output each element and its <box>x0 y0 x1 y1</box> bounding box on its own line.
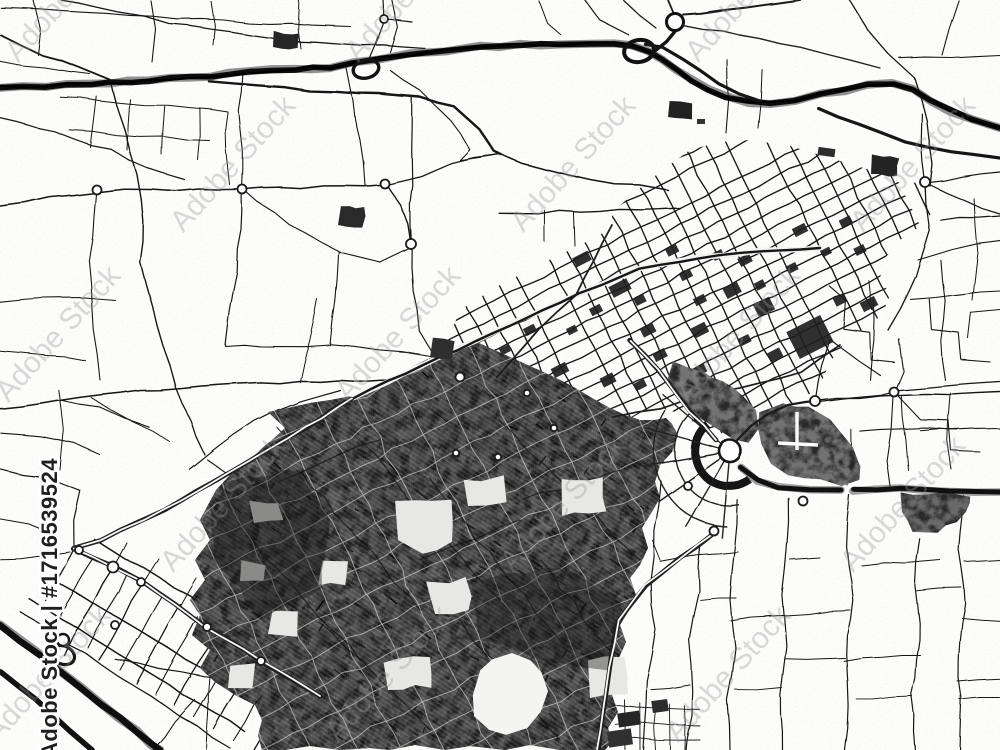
svg-text:Adobe Stock | #1716539524: Adobe Stock | #1716539524 <box>37 458 62 750</box>
